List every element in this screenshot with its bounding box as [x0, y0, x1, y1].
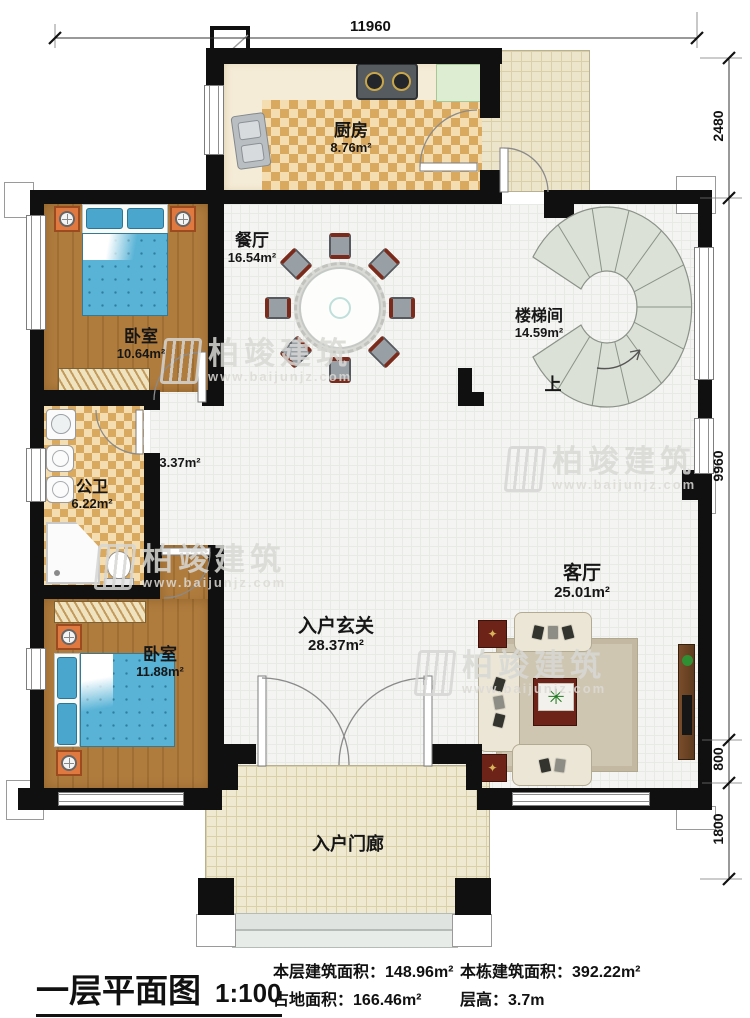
toilet-bowl — [107, 551, 131, 579]
dimension-right-1800: 1800 — [710, 799, 726, 859]
hallway-area-label: 3.37m² — [159, 456, 200, 470]
room-area: 28.37m² — [298, 638, 374, 655]
pillow — [491, 711, 506, 728]
room-label-porch: 入户门廊 — [312, 835, 384, 855]
room-name: 客厅 — [554, 564, 610, 585]
window — [26, 215, 46, 330]
pillow — [531, 623, 546, 640]
sofa-bottom — [512, 744, 592, 786]
wall — [206, 190, 502, 204]
wall — [208, 545, 224, 790]
drum-icon — [52, 450, 69, 467]
plan-scale: 1:100 — [215, 978, 282, 1009]
room-area: 8.76m² — [330, 141, 371, 155]
wall — [30, 390, 152, 406]
bedroom2-entry-floor — [160, 545, 210, 605]
room-area: 10.64m² — [117, 347, 165, 361]
wall — [202, 390, 224, 406]
stat-value: 392.22m² — [572, 964, 641, 981]
dining-chair — [329, 357, 351, 383]
stat-value: 148.96m² — [385, 964, 454, 981]
room-label-bedroom1: 卧室 10.64m² — [117, 328, 165, 361]
window — [512, 792, 650, 806]
window — [694, 247, 714, 380]
sofa-top — [514, 612, 592, 652]
stat-label: 层高： — [460, 992, 508, 1009]
porch-step-1 — [232, 913, 458, 930]
kitchen-prep-board — [436, 64, 482, 102]
toilet — [104, 551, 134, 589]
wardrobe — [54, 601, 146, 623]
room-name: 餐厅 — [228, 232, 276, 251]
side-table: ✦ — [478, 620, 507, 648]
lamp-icon — [61, 755, 77, 771]
pillow — [553, 757, 567, 774]
plan-title-text: 一层平面图 — [36, 964, 201, 1012]
dimension-right-2480: 2480 — [710, 96, 726, 156]
bathroom-sink — [46, 409, 76, 440]
stat-floor-area: 本层建筑面积：148.96m² — [273, 958, 454, 982]
dining-chair — [389, 297, 415, 319]
stair-up-label: 上 — [545, 376, 562, 395]
burner-icon — [392, 72, 411, 91]
pillow — [560, 623, 575, 640]
room-label-dining: 餐厅 16.54m² — [228, 232, 276, 265]
room-label-bedroom2: 卧室 11.88m² — [136, 646, 184, 679]
pillow — [127, 208, 164, 229]
room-area: 6.22m² — [71, 497, 112, 511]
wall — [144, 453, 160, 599]
stove — [356, 63, 418, 100]
bed1-sheet-fold — [83, 234, 167, 260]
room-area: 16.54m² — [228, 251, 276, 265]
room-area: 11.88m² — [136, 665, 184, 679]
wall — [208, 190, 224, 405]
room-label-kitchen: 厨房 8.76m² — [330, 122, 371, 155]
dining-chair — [329, 233, 351, 259]
pillow — [57, 657, 77, 699]
wall — [30, 190, 210, 204]
tv-icon — [682, 695, 692, 735]
lamp-icon — [61, 629, 77, 645]
pillow — [86, 208, 123, 229]
dimension-top: 11960 — [350, 18, 391, 35]
wall — [206, 48, 502, 64]
room-label-foyer: 入户玄关 28.37m² — [298, 617, 374, 654]
window — [26, 448, 46, 502]
wall-pier — [198, 878, 234, 915]
room-area: 25.01m² — [554, 585, 610, 602]
stat-label: 占地面积： — [273, 992, 353, 1009]
wall-pier — [544, 190, 574, 218]
sofa-left — [478, 652, 520, 752]
room-name: 入户玄关 — [298, 617, 374, 638]
room-area: 3.37m² — [159, 456, 200, 470]
room-name: 卧室 — [136, 646, 184, 665]
dining-table-center — [329, 297, 351, 319]
wall-stub — [458, 392, 484, 406]
dimension-right-9960: 9960 — [710, 436, 726, 496]
column-outline — [452, 914, 492, 947]
plan-title: 一层平面图 1:100 — [36, 964, 282, 1017]
room-name: 公卫 — [71, 479, 112, 497]
drum-icon — [52, 481, 69, 498]
coffee-table: ✳ — [533, 678, 577, 726]
stat-storey-height: 层高：3.7m — [460, 986, 544, 1010]
window — [58, 792, 184, 806]
column-outline — [196, 914, 236, 947]
stat-footprint: 占地面积：166.46m² — [273, 986, 422, 1010]
lamp-icon — [59, 211, 75, 227]
room-label-bathroom: 公卫 6.22m² — [71, 479, 112, 511]
wall — [480, 48, 500, 118]
lamp-icon — [175, 211, 191, 227]
pillow — [537, 756, 552, 773]
wall — [30, 585, 160, 599]
room-area: 14.59m² — [515, 326, 563, 340]
room-label-stairwell: 楼梯间 14.59m² — [515, 308, 563, 340]
floorplan-canvas: ✦ ✦ ✳ — [0, 0, 750, 1018]
wall — [144, 390, 160, 410]
plant-icon: ✳ — [545, 687, 567, 709]
window — [204, 85, 224, 155]
laundry-unit — [46, 476, 74, 503]
pillow — [57, 703, 77, 745]
pillow — [491, 675, 507, 693]
wall-pier — [455, 878, 491, 915]
pillow — [492, 694, 506, 711]
pillow — [547, 625, 559, 640]
room-name: 厨房 — [330, 122, 371, 141]
nightstand — [56, 750, 82, 776]
wardrobe — [58, 368, 150, 392]
stat-building-area: 本栋建筑面积：392.22m² — [460, 958, 641, 982]
stat-label: 本层建筑面积： — [273, 964, 385, 981]
plant-icon — [682, 655, 693, 666]
window — [26, 648, 46, 690]
stat-label: 本栋建筑面积： — [460, 964, 572, 981]
wall — [144, 545, 162, 559]
wall — [466, 744, 482, 790]
burner-icon — [365, 72, 384, 91]
sink-basin — [241, 142, 265, 163]
laundry-unit — [46, 445, 74, 472]
wall-pier — [682, 470, 702, 500]
up-text: 上 — [545, 376, 562, 395]
wall — [222, 744, 256, 764]
kitchen-tile-floor — [262, 100, 482, 192]
porch-step-2 — [232, 930, 458, 948]
bed2-sheet-fold — [81, 654, 113, 746]
basin-icon — [51, 414, 71, 434]
dimension-right-800: 800 — [710, 729, 726, 789]
sink-basin — [237, 120, 261, 141]
nightstand — [170, 206, 196, 232]
room-name: 入户门廊 — [312, 835, 384, 855]
tv-cabinet — [678, 644, 695, 760]
dining-chair — [265, 297, 291, 319]
nightstand — [54, 206, 80, 232]
drain-icon — [54, 570, 60, 576]
stat-value: 166.46m² — [353, 992, 422, 1009]
room-name: 卧室 — [117, 328, 165, 347]
kitchen-sink — [230, 112, 271, 170]
side-table: ✦ — [478, 754, 507, 782]
room-label-living: 客厅 25.01m² — [554, 564, 610, 601]
bed1 — [82, 233, 168, 316]
stat-value: 3.7m — [508, 992, 544, 1009]
nightstand — [56, 624, 82, 650]
room-name: 楼梯间 — [515, 308, 563, 326]
